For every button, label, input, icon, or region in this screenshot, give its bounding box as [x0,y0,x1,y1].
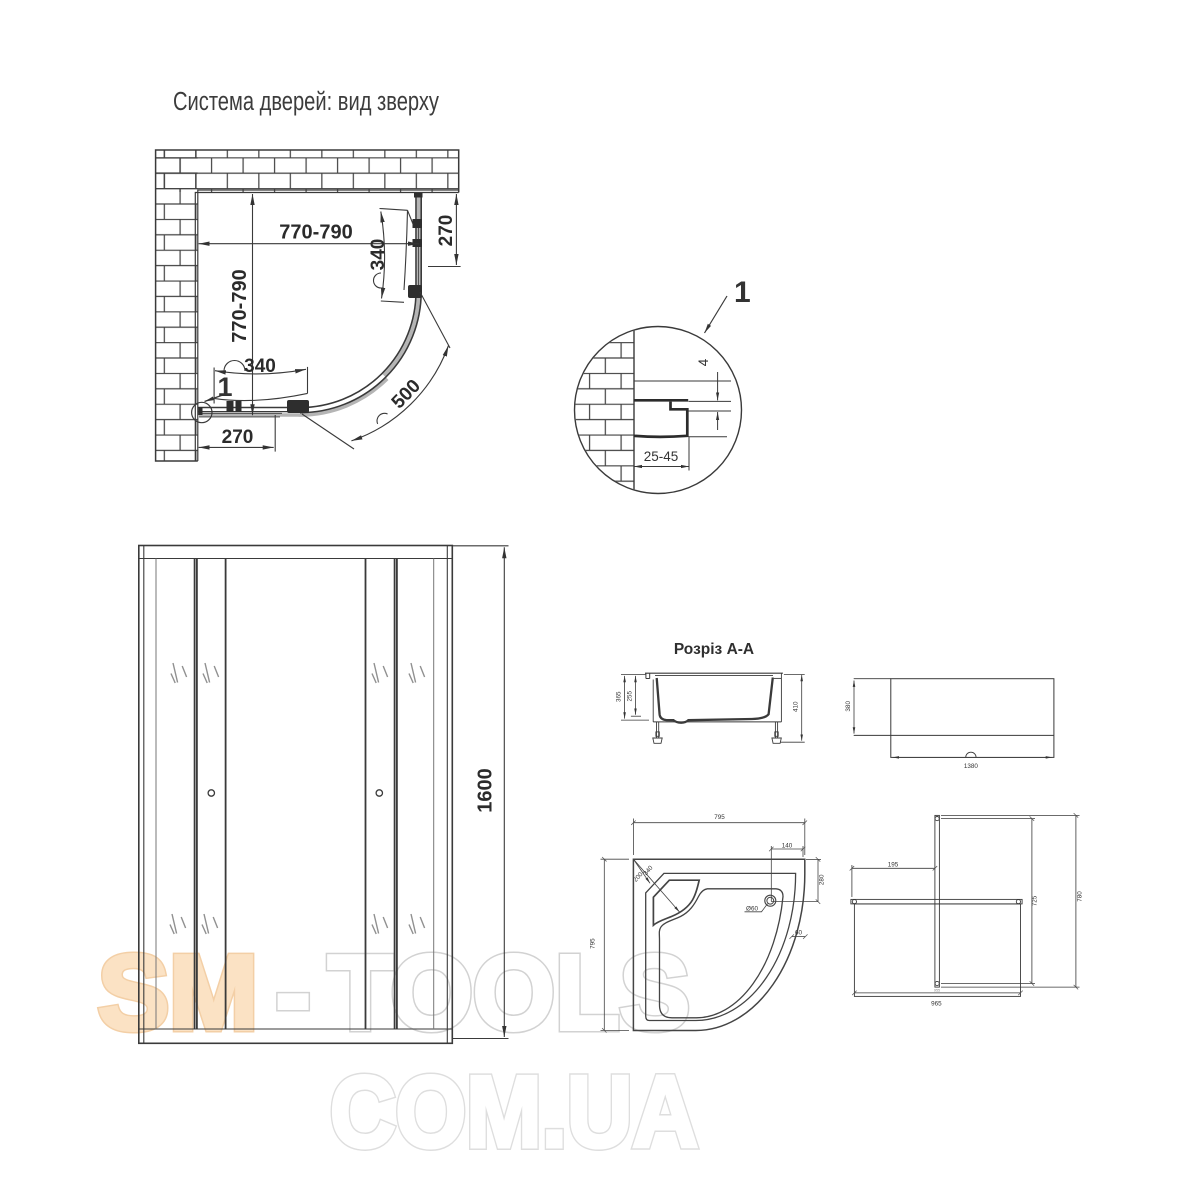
svg-text:4: 4 [696,358,711,366]
svg-text:380: 380 [845,701,852,712]
svg-text:255: 255 [627,690,634,701]
svg-text:TOOLS: TOOLS [328,934,690,1052]
svg-text:410: 410 [793,701,800,712]
svg-text:725: 725 [1031,895,1038,906]
svg-text:795: 795 [590,938,597,949]
svg-text:1: 1 [734,276,751,309]
svg-text:Розріз А-А: Розріз А-А [674,641,754,658]
svg-text:-: - [276,934,311,1052]
svg-text:SM: SM [98,934,258,1052]
svg-text:280: 280 [818,874,825,885]
svg-text:340: 340 [368,239,389,271]
svg-text:COM.UA: COM.UA [330,1057,698,1169]
svg-text:500: 500 [388,376,425,413]
svg-text:965: 965 [931,1000,942,1007]
svg-text:270: 270 [222,427,254,448]
svg-text:60: 60 [795,929,803,936]
svg-text:795: 795 [714,814,725,821]
svg-text:140: 140 [782,843,793,850]
svg-text:195: 195 [888,861,899,868]
svg-text:770-790: 770-790 [229,269,251,342]
svg-text:365: 365 [616,691,623,702]
svg-text:340: 340 [244,356,276,377]
svg-text:955: 955 [934,989,940,993]
svg-text:1600: 1600 [475,768,497,813]
svg-text:25-45: 25-45 [644,449,679,464]
svg-text:1380: 1380 [964,763,979,770]
svg-text:340: 340 [642,864,655,877]
svg-text:1: 1 [218,372,233,402]
svg-text:780: 780 [1076,891,1083,902]
svg-text:770-790: 770-790 [279,222,352,244]
svg-text:270: 270 [436,215,457,247]
svg-text:Система дверей: вид зверху: Система дверей: вид зверху [173,88,439,116]
